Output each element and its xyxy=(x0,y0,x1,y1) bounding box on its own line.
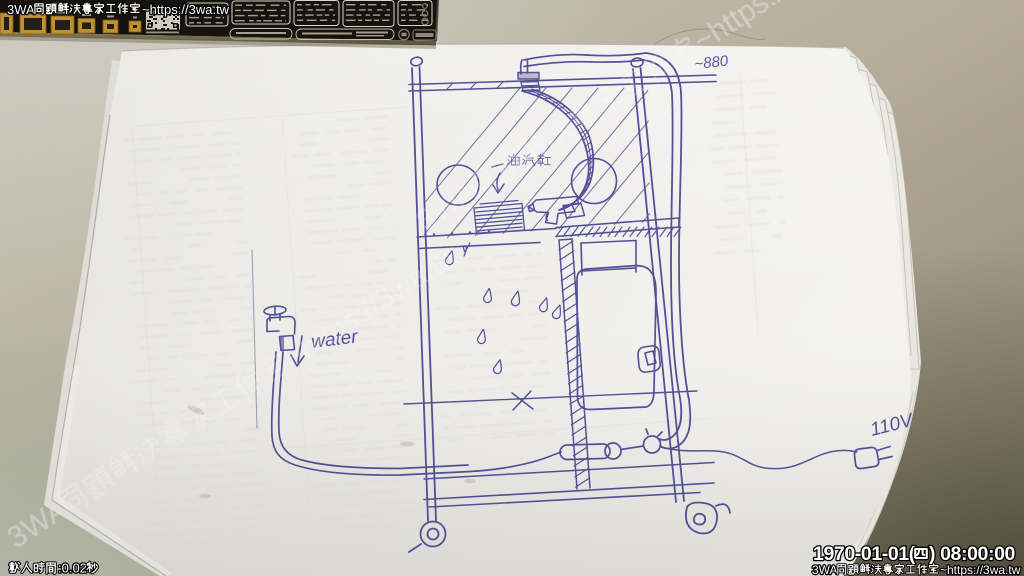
svg-text:~https://3wa.tw: ~https://3wa.tw xyxy=(142,2,230,17)
svg-text:~https://3wa.tw: ~https://3wa.tw xyxy=(940,563,1021,576)
svg-text:) 08:00:00: ) 08:00:00 xyxy=(929,543,1016,565)
svg-text::0.02: :0.02 xyxy=(58,561,87,576)
svg-text:3WA: 3WA xyxy=(812,563,838,576)
svg-text:1970-01-01(: 1970-01-01( xyxy=(813,543,916,565)
svg-text:~880: ~880 xyxy=(694,52,730,73)
svg-text:3WA: 3WA xyxy=(7,2,35,17)
